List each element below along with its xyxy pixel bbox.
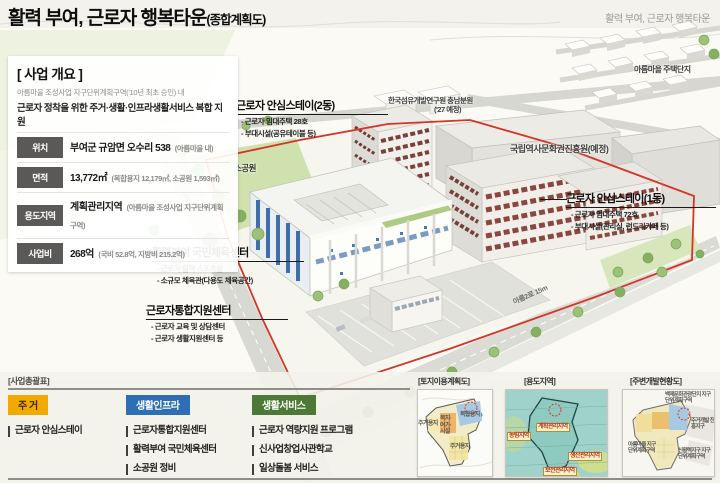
surrounding-map: 백제문화관광단지 지구단위계획구역 주거개발 진흥지구 아름마을 지구단위계획구… xyxy=(622,389,715,477)
leader-line xyxy=(540,199,567,200)
callout-title: 근로자 안심스테이(1동) xyxy=(566,190,716,208)
overview-subtitle-bold: 근로자 정착을 위한 주거·생활·인프라생활서비스 복합 지원 xyxy=(17,100,229,128)
row-note: (복합용지 12,179㎡, 소공원 1,593㎡) xyxy=(112,174,220,183)
label-textile-line2: ('27 예정) xyxy=(434,105,473,114)
row-note: (국비 52.8억, 지방비 215.2억) xyxy=(98,250,184,259)
zoning-label: 계획관리지역 xyxy=(536,423,570,432)
header-watermark: 활력 부여, 근로자 행복타운 xyxy=(605,10,710,25)
overview-subtitle-small: 아름마을 조성사업 지구단위계획구역('10년 최초 승인) 내 xyxy=(17,87,229,98)
row-label: 용도지역 xyxy=(17,205,63,226)
zoning-label: 농림지역 xyxy=(507,432,531,441)
landuse-label: 복지·여가·시설 xyxy=(440,416,455,436)
landuse-map: 주거용지 복지·여가·시설 복합용지 주거용지 xyxy=(417,389,493,477)
summary-item: 근로자통합지원센터 xyxy=(126,426,216,437)
badge-infra: 생활인프라 xyxy=(126,395,190,415)
callout-title: 근로자통합지원센터 xyxy=(146,302,288,320)
callout-item: - 소규모 체육관(다용도 체육공간) xyxy=(152,276,304,286)
row-label: 면적 xyxy=(17,167,63,188)
surrounding-label: 신활력지구 지구단위계획구역 xyxy=(678,448,712,460)
surrounding-label: 주거개발 진흥지구 xyxy=(691,418,715,430)
summary-item: 활력부여 국민체육센터 xyxy=(126,445,216,456)
row-value: 268억 xyxy=(70,249,94,260)
landuse-map-graphic xyxy=(418,390,493,477)
overview-title: [ 사업 개요 ] xyxy=(17,63,229,83)
row-value: 계획관리지역 xyxy=(70,202,122,213)
zoning-label: 생산관리지역 xyxy=(568,452,602,461)
callout-item: - 근로자 임대주택 72호 xyxy=(566,210,716,220)
summary-column-infra: 생활인프라 근로자통합지원센터 활력부여 국민체육센터 소공원 정비 xyxy=(126,395,216,475)
summary-column-service: 생활서비스 근로자 역량지원 프로그램 신사업창업사관학교 일상돌봄 서비스 xyxy=(252,395,353,475)
project-overview-box: [ 사업 개요 ] 아름마을 조성사업 지구단위계획구역('10년 최초 승인)… xyxy=(8,56,238,272)
landuse-label: 주거용지 xyxy=(450,444,470,451)
summary-item: 신사업창업사관학교 xyxy=(252,445,353,456)
callout-stay1: 근로자 안심스테이(1동) - 근로자 임대주택 72호 - 부대시설(관리실,… xyxy=(566,190,716,232)
overview-row-location: 위치 부여군 규암면 오수리 538 (아름마을 내) xyxy=(17,132,229,158)
row-label: 사업비 xyxy=(17,243,63,264)
callout-support-center: 근로자통합지원센터 - 근로자 교육 및 상담센터 - 근로자 생활지원센터 등 xyxy=(146,302,288,344)
row-value: 13,772㎡ xyxy=(70,173,107,184)
row-value: 부여군 규암면 오수리 538 xyxy=(70,143,170,154)
badge-service: 생활서비스 xyxy=(252,395,316,415)
callout-stay2: 근로자 안심스테이(2동) - 근로자 임대주택 28호 - 부대시설(공유테이… xyxy=(236,97,388,139)
summary-bottom-rule xyxy=(8,478,712,480)
callout-item: - 근로자 임대주택 28호 xyxy=(236,117,388,127)
zoning-map: 농림지역 계획관리지역 생산관리지역 보전관리지역 xyxy=(505,389,608,477)
badge-housing: 주 거 xyxy=(8,395,48,415)
zoning-map-title: [용도지역] xyxy=(524,376,555,387)
row-note: (아름마을 내) xyxy=(175,144,213,153)
surrounding-label: 아름마을 지구단위계획구역 xyxy=(628,442,660,454)
surrounding-label: 백제문화관광단지 지구단위계획구역 xyxy=(665,392,713,404)
summary-item: 근로자 역량지원 프로그램 xyxy=(252,426,353,437)
callout-item: - 부대시설(관리실, 런드리카페 등) xyxy=(566,222,716,232)
callout-item: - 근로자 교육 및 상담센터 xyxy=(146,322,288,332)
surrounding-map-title: [주변개발현황도] xyxy=(630,376,681,387)
label-heritage-center: 국립역사문화권진흥원(예정) xyxy=(510,142,608,155)
summary-item: 소공원 정비 xyxy=(126,464,216,475)
label-textile-institute: 한국섬유개발연구원 충남분원 ('27 예정) xyxy=(388,96,473,114)
callout-item: - 부대시설(공유테이블 등) xyxy=(236,129,388,139)
landuse-label: 주거용지 xyxy=(418,421,438,428)
page-title: 활력 부여, 근로자 행복타운(종합계획도) xyxy=(8,3,265,30)
page-title-main: 활력 부여, 근로자 행복타운 xyxy=(8,8,206,29)
landuse-label: 복합용지 xyxy=(460,412,480,419)
row-label: 위치 xyxy=(17,137,63,158)
label-village: 아름마을 주택단지 xyxy=(634,64,691,75)
overview-row-area: 면적 13,772㎡ (복합용지 12,179㎡, 소공원 1,593㎡) xyxy=(17,162,229,188)
zoning-label: 보전관리지역 xyxy=(543,467,577,476)
label-textile-line1: 한국섬유개발연구원 충남분원 xyxy=(388,96,473,105)
landuse-map-title: [토지이용계획도] xyxy=(418,376,469,387)
page-title-suffix: (종합계획도) xyxy=(206,13,265,27)
summary-item: 근로자 안심스테이 xyxy=(8,426,82,437)
summary-item: 일상돌봄 서비스 xyxy=(252,464,353,475)
masterplan-slide: { "header": { "title": "활력 부여, 근로자 행복타운"… xyxy=(0,0,720,483)
summary-column-housing: 주 거 근로자 안심스테이 xyxy=(8,395,82,437)
summary-table-title: [사업총괄표] xyxy=(8,375,49,387)
callout-item: - 근로자 생활지원센터 등 xyxy=(146,334,288,344)
overview-row-zoning: 용도지역 계획관리지역 (아름마을 조성사업 지구단위계획구역) xyxy=(17,192,229,234)
callout-title: 근로자 안심스테이(2동) xyxy=(236,97,388,115)
overview-row-budget: 사업비 268억 (국비 52.8억, 지방비 215.2억) xyxy=(17,238,229,264)
summary-top-rule xyxy=(8,388,410,390)
